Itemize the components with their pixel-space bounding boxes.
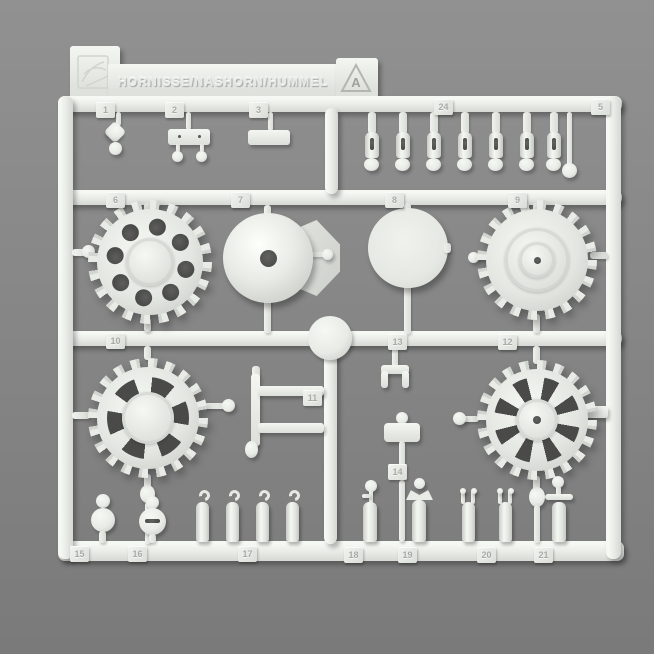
part-11-bracket-upright	[251, 374, 260, 446]
hook	[257, 488, 272, 503]
sprue-gate	[149, 534, 156, 543]
model-kit-sprue-photo: A HORNISSE/NASHORN/HUMMEL 1 2 3 24 5	[0, 0, 654, 654]
part-1-knob	[104, 121, 127, 144]
part-number-tag: 16	[128, 546, 147, 562]
part-8-hinge-notch	[444, 243, 451, 253]
part-2-foot	[172, 151, 183, 162]
part-number-tag: 17	[238, 546, 257, 562]
part-3-bar	[248, 130, 290, 145]
part-11-bracket-arm	[258, 423, 324, 433]
sprue-letter: A	[351, 75, 361, 90]
axle-hole	[533, 416, 541, 424]
part-number-tag: 18	[344, 547, 363, 563]
part-18-pin	[362, 494, 371, 498]
part-9-sprocket-outer	[477, 200, 597, 320]
part-number-tag: 20	[477, 547, 496, 563]
part-8-hatch-disc	[368, 208, 448, 288]
part-24-damper	[488, 112, 504, 172]
part-17-cylinder	[285, 490, 301, 542]
right-runner	[606, 96, 621, 559]
part-number-tag: 2	[165, 102, 184, 118]
part-24-damper	[395, 112, 411, 172]
hub	[126, 238, 174, 286]
part-5-pin-ball	[562, 163, 577, 178]
sprue-title-emboss: HORNISSE/NASHORN/HUMMEL	[108, 66, 338, 98]
part-number-tag: 9	[508, 192, 527, 208]
part-2-foot	[196, 151, 207, 162]
center-runner-top	[325, 108, 338, 194]
part-number-tag: 12	[498, 334, 517, 350]
part-19-knob	[414, 478, 425, 489]
sprue-gate	[99, 531, 106, 543]
part-number-tag: 1	[96, 102, 115, 118]
part-20-fork-cylinder	[460, 488, 478, 542]
part-17-cylinder	[255, 490, 271, 542]
part-2-plate	[168, 129, 210, 145]
part-number-tag: 5	[591, 99, 610, 115]
part-number-tag: 14	[388, 464, 407, 480]
part-16-slot	[145, 519, 160, 523]
part-24-damper	[519, 112, 535, 172]
part-17-cylinder	[195, 490, 211, 542]
part-21-crossbar	[545, 494, 573, 500]
part-15-knob	[96, 494, 110, 508]
left-runner	[58, 96, 73, 559]
part-13-clamp-prong	[381, 371, 388, 388]
part-10-spoked-sprocket	[88, 358, 208, 478]
part-12-slotted-sprocket	[477, 360, 597, 480]
part-number-tag: 19	[398, 547, 417, 563]
part-18-cylinder	[363, 502, 377, 542]
part-19-cylinder	[412, 500, 426, 542]
part-15-cap	[91, 508, 115, 532]
part-13-clamp-prong	[402, 371, 409, 388]
sprue-gate	[534, 505, 540, 543]
sprue-letter-triangle-icon: A	[336, 58, 378, 98]
part-number-tag: 24	[434, 99, 453, 115]
sprue-gate	[404, 284, 411, 334]
hook	[227, 488, 242, 503]
gate-blob	[322, 249, 333, 260]
gate-blob	[529, 487, 545, 507]
part-number-tag: 7	[231, 192, 250, 208]
part-24-damper	[426, 112, 442, 172]
part-number-tag: 13	[388, 334, 407, 350]
part-20-fork-cylinder	[497, 488, 515, 542]
part-2-hole	[178, 135, 181, 138]
axle-hole	[534, 257, 541, 264]
part-19-wings	[406, 489, 433, 500]
hub	[122, 392, 174, 444]
hook	[197, 488, 212, 503]
part-24-damper	[457, 112, 473, 172]
top-runner	[58, 96, 622, 112]
part-5-pin-rod	[567, 112, 572, 166]
part-number-tag: 21	[534, 547, 553, 563]
runner-junction-boss	[308, 316, 352, 360]
part-21-cylinder	[552, 502, 566, 542]
part-number-tag: 10	[106, 333, 125, 349]
sprue-gate	[268, 112, 273, 131]
gate-blob	[453, 412, 466, 425]
part-number-tag: 6	[106, 192, 125, 208]
hook	[287, 488, 302, 503]
part-number-tag: 3	[249, 102, 268, 118]
part-14-plate	[384, 423, 420, 442]
part-2-hole	[198, 135, 201, 138]
part-24-damper	[364, 112, 380, 172]
sprue-gate	[186, 112, 191, 130]
part-7-axle-hole	[260, 250, 277, 267]
part-number-tag: 11	[303, 390, 322, 406]
part-1-ball	[109, 142, 122, 155]
label-bar-right-tab: A	[336, 58, 378, 98]
part-17-cylinder	[225, 490, 241, 542]
gate-blob	[222, 399, 235, 412]
center-runner-bottom	[324, 350, 337, 544]
part-24-damper	[546, 112, 562, 172]
sprue-gate	[399, 480, 405, 542]
part-11-foot	[245, 441, 258, 458]
part-6-drive-sprocket	[88, 200, 212, 324]
part-number-tag: 8	[385, 192, 404, 208]
part-number-tag: 15	[70, 546, 89, 562]
sprue-gate	[264, 298, 271, 333]
